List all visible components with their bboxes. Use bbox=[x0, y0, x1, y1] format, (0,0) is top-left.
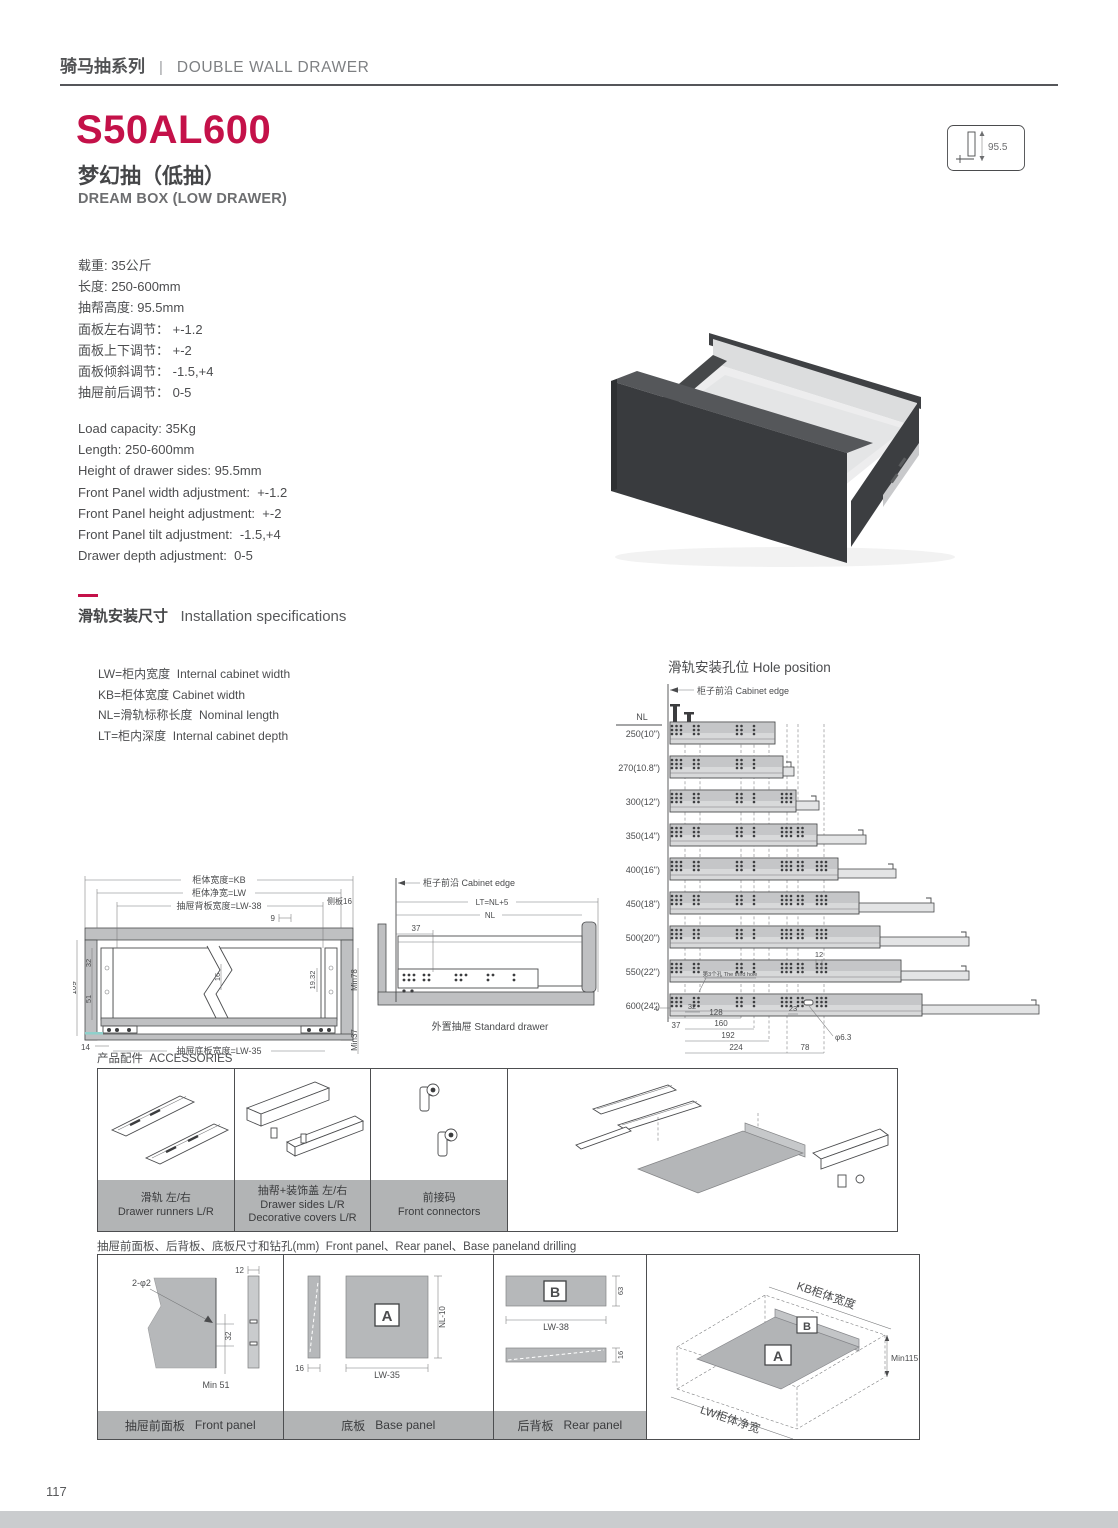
dim-label: 32 bbox=[84, 959, 93, 967]
accessory-cell-runners: 滑轨 左/右 Drawer runners L/R bbox=[98, 1069, 235, 1231]
hole-position-title: 滑轨安装孔位 Hole position bbox=[668, 656, 831, 676]
series-title-cn: 骑马抽系列 bbox=[60, 52, 145, 77]
front-panel-caption-en: Front panel bbox=[195, 1418, 256, 1432]
spec-line: Front Panel width adjustment: +-1.2 bbox=[78, 482, 287, 503]
rail-row-270: 270(10.8") bbox=[618, 756, 794, 778]
product-name-en: DREAM BOX (LOW DRAWER) bbox=[78, 191, 287, 207]
rear-panel-drawing: B 63 LW-38 16 bbox=[494, 1256, 645, 1411]
header-rule bbox=[60, 84, 1058, 86]
page-header: 骑马抽系列 | DOUBLE WALL DRAWER bbox=[60, 52, 369, 77]
dim-label: Min 51 bbox=[203, 1380, 230, 1390]
dim-label: 37 bbox=[672, 1021, 681, 1030]
spec-line: Load capacity: 35Kg bbox=[78, 418, 287, 439]
cabinet-edge-label: 柜子前沿 Cabinet edge bbox=[423, 877, 515, 888]
rail-row-550: 550(22") bbox=[626, 960, 969, 982]
rear-panel-caption-en: Rear panel bbox=[563, 1418, 622, 1432]
base-panel-caption-cn: 底板 bbox=[341, 1417, 365, 1434]
drawer-sides-icon bbox=[235, 1072, 370, 1177]
install-title-cn: 滑轨安装尺寸 bbox=[78, 608, 168, 625]
accessory-cell-sides: 抽帮+装饰盖 左/右 Drawer sides L/R Decorative c… bbox=[235, 1069, 372, 1231]
install-title-en: Installation specifications bbox=[180, 608, 346, 625]
badge-height-label: 95.5 bbox=[988, 142, 1008, 153]
accessory-caption-en: Drawer runners L/R bbox=[98, 1206, 234, 1220]
base-panel-caption-en: Base panel bbox=[375, 1418, 435, 1432]
catalog-page: 骑马抽系列 | DOUBLE WALL DRAWER S50AL600 梦幻抽（… bbox=[0, 0, 1118, 1528]
dim-label: 柜体宽度=KB bbox=[192, 874, 245, 885]
legend-line: LT=柜内深度 Internal cabinet depth bbox=[98, 726, 290, 747]
accessory-caption: 滑轨 左/右 Drawer runners L/R bbox=[98, 1180, 234, 1231]
spec-line: 载重: 35公斤 bbox=[78, 255, 213, 276]
exploded-assembly-drawing bbox=[508, 1071, 896, 1229]
spec-line: Height of drawer sides: 95.5mm bbox=[78, 460, 287, 481]
panels-title-cn: 抽屉前面板、后背板、底板尺寸和钻孔(mm) bbox=[97, 1241, 319, 1253]
install-section-title: 滑轨安装尺寸 Installation specifications bbox=[78, 605, 346, 626]
accessory-caption-en: Drawer sides L/R bbox=[235, 1199, 371, 1213]
dim-label: 19.32 bbox=[308, 971, 317, 990]
dim-label: 128 bbox=[709, 1008, 723, 1017]
dim-label: NL bbox=[485, 911, 496, 920]
front-panel-caption: 抽屉前面板 Front panel bbox=[98, 1411, 283, 1439]
iso-mark-a: A bbox=[773, 1348, 783, 1364]
install-legend: LW=柜内宽度 Internal cabinet width KB=柜体宽度 C… bbox=[98, 664, 290, 746]
section-accent-dash bbox=[78, 594, 98, 597]
dim-label: 16 bbox=[213, 973, 222, 981]
nl-row-label: 250(10") bbox=[626, 729, 660, 739]
front-bracket-icon bbox=[670, 704, 694, 722]
specs-english: Load capacity: 35Kg Length: 250-600mm He… bbox=[78, 418, 287, 566]
nl-row-label: 550(22") bbox=[626, 967, 660, 977]
nl-row-label: 300(12") bbox=[626, 797, 660, 807]
dim-label: Min115 bbox=[891, 1353, 918, 1363]
nl-row-label: 500(20") bbox=[626, 933, 660, 943]
rear-panel-mark: B bbox=[550, 1284, 560, 1300]
dim-label: 16 bbox=[295, 1364, 304, 1373]
accessory-caption-en2: Decorative covers L/R bbox=[235, 1212, 371, 1226]
rail-row-500: 500(20") bbox=[626, 926, 969, 948]
spec-line: Drawer depth adjustment: 0-5 bbox=[78, 545, 287, 566]
spec-line: Front Panel tilt adjustment: -1.5,+4 bbox=[78, 524, 287, 545]
spec-line: 面板倾斜调节： -1.5,+4 bbox=[78, 361, 213, 382]
spec-line: 抽帮高度: 95.5mm bbox=[78, 297, 213, 318]
rail-row-450: 450(18") bbox=[626, 892, 934, 914]
legend-line: KB=柜体宽度 Cabinet width bbox=[98, 685, 290, 706]
legend-line: NL=滑轨标称长度 Nominal length bbox=[98, 705, 290, 726]
spec-line: 长度: 250-600mm bbox=[78, 276, 213, 297]
base-panel-drawing: 16 A LW-35 NL-10 bbox=[284, 1256, 493, 1411]
panels-table: 2-φ2 32 Min 51 12 抽屉前面板 bbox=[97, 1254, 920, 1440]
cabinet-iso-drawing: A B KB柜体宽度 LW柜体净宽 Min115 bbox=[647, 1255, 918, 1439]
accessories-title-en: ACCESSORIES bbox=[149, 1053, 232, 1065]
rail-row-400: 400(16") bbox=[626, 858, 896, 880]
rail-row-300: 300(12") bbox=[626, 790, 819, 812]
iso-mark-b: B bbox=[803, 1321, 811, 1333]
base-panel-mark: A bbox=[381, 1308, 392, 1325]
dim-label: Min78 bbox=[350, 969, 359, 991]
dim-label: 23 bbox=[789, 1004, 797, 1013]
dim-label: LW-38 bbox=[544, 1322, 570, 1332]
cabinet-edge-label: 柜子前沿 Cabinet edge bbox=[697, 685, 789, 696]
third-hole-note: 第3个孔 The third hole bbox=[703, 970, 758, 978]
dim-label: 14 bbox=[81, 1043, 90, 1052]
rear-panel-caption: 后背板 Rear panel bbox=[494, 1411, 646, 1439]
dim-label: 32 bbox=[688, 1002, 696, 1011]
panels-title-en: Front panel、Rear panel、Base paneland dri… bbox=[326, 1241, 577, 1253]
dim-label: 192 bbox=[721, 1031, 735, 1040]
series-separator: | bbox=[159, 59, 163, 76]
side-view-structure bbox=[378, 922, 596, 1005]
accessories-table: 滑轨 左/右 Drawer runners L/R 抽帮+装饰盖 左/右 bbox=[97, 1068, 898, 1232]
accessory-caption: 前接码 Front connectors bbox=[371, 1180, 507, 1231]
dim-label: 12 bbox=[815, 950, 823, 959]
dim-label: 160 bbox=[714, 1019, 728, 1028]
dim-label: 抽屉背板宽度=LW-38 bbox=[177, 900, 262, 911]
spec-line: Length: 250-600mm bbox=[78, 439, 287, 460]
accessory-cell-connectors: 前接码 Front connectors bbox=[371, 1069, 508, 1231]
cross-section-drawing: 柜体宽度=KB 柜体净宽=LW 抽屉背板宽度=LW-38 侧板16 9 109 … bbox=[73, 872, 365, 1062]
dim-label: 37 bbox=[412, 924, 421, 933]
front-panel-caption-cn: 抽屉前面板 bbox=[125, 1417, 185, 1434]
dim-label: 12 bbox=[235, 1266, 244, 1275]
hole-diameter-label: φ6.3 bbox=[835, 1033, 852, 1042]
slotted-hole bbox=[804, 1000, 813, 1005]
rear-panel-cell: B 63 LW-38 16 后背板 Rear panel bbox=[494, 1255, 647, 1439]
iso-cell: A B KB柜体宽度 LW柜体净宽 Min115 bbox=[647, 1255, 919, 1439]
accessory-caption-cn: 前接码 bbox=[371, 1192, 507, 1206]
nl-row-label: 400(16") bbox=[626, 865, 660, 875]
dim-label: 侧板16 bbox=[327, 896, 352, 906]
dim-label: LT=NL+5 bbox=[476, 898, 509, 907]
accessories-title-cn: 产品配件 bbox=[97, 1053, 143, 1065]
rail-row-350: 350(14") bbox=[626, 824, 866, 846]
side-view-caption: 外置抽屉 Standard drawer bbox=[432, 1020, 549, 1033]
spec-line: Front Panel height adjustment: +-2 bbox=[78, 503, 287, 524]
accessory-caption: 抽帮+装饰盖 左/右 Drawer sides L/R Decorative c… bbox=[235, 1180, 371, 1231]
dim-label: 109 bbox=[73, 981, 78, 995]
nl-row-label: 270(10.8") bbox=[618, 763, 660, 773]
nl-row-label: 350(14") bbox=[626, 831, 660, 841]
hole-position-diagram: 柜子前沿 Cabinet edge NL 250(10")270(10.8")3… bbox=[602, 676, 1062, 1061]
dim-label: 柜体净宽=LW bbox=[192, 887, 247, 898]
spec-line: 面板上下调节： +-2 bbox=[78, 340, 213, 361]
dim-label: 78 bbox=[801, 1043, 810, 1052]
dim-label: 9 bbox=[271, 914, 276, 923]
accessory-caption-cn: 抽帮+装饰盖 左/右 bbox=[235, 1185, 371, 1199]
dim-label: 63 bbox=[616, 1286, 625, 1294]
front-connectors-icon bbox=[372, 1072, 507, 1177]
drawer-runners-icon bbox=[98, 1072, 233, 1177]
height-badge: 95.5 bbox=[946, 124, 1026, 172]
dim-label: LW-35 bbox=[374, 1370, 400, 1380]
nl-row-label: 450(18") bbox=[626, 899, 660, 909]
spec-line: 面板左右调节： +-1.2 bbox=[78, 319, 213, 340]
nl-column-header: NL bbox=[636, 712, 648, 722]
rear-panel-caption-cn: 后背板 bbox=[517, 1417, 553, 1434]
specs-chinese: 载重: 35公斤 长度: 250-600mm 抽帮高度: 95.5mm 面板左右… bbox=[78, 255, 213, 403]
accessories-title: 产品配件 ACCESSORIES bbox=[97, 1050, 232, 1066]
dim-label: 16 bbox=[616, 1350, 625, 1358]
dim-label: 32 bbox=[224, 1331, 233, 1340]
panels-title: 抽屉前面板、后背板、底板尺寸和钻孔(mm) Front panel、Rear p… bbox=[97, 1238, 576, 1254]
base-panel-cell: 16 A LW-35 NL-10 底板 Base panel bbox=[284, 1255, 494, 1439]
legend-line: LW=柜内宽度 Internal cabinet width bbox=[98, 664, 290, 685]
dim-label: 4 bbox=[654, 1004, 658, 1013]
drawer-side-profile-icon bbox=[968, 132, 975, 156]
base-panel-caption: 底板 Base panel bbox=[284, 1411, 493, 1439]
product-photo bbox=[585, 295, 1005, 580]
product-name-cn: 梦幻抽（低抽） bbox=[78, 160, 225, 190]
rail-rows: 250(10")270(10.8")300(12")350(14")400(16… bbox=[618, 722, 1039, 1016]
series-title-en: DOUBLE WALL DRAWER bbox=[177, 59, 370, 77]
dim-label: NL-10 bbox=[438, 1305, 447, 1327]
footer-band bbox=[0, 1511, 1118, 1528]
accessory-cell-exploded bbox=[508, 1069, 897, 1231]
dim-label: 2-φ2 bbox=[132, 1278, 151, 1288]
page-number: 117 bbox=[46, 1484, 67, 1499]
dim-label: 51 bbox=[84, 995, 93, 1003]
product-model: S50AL600 bbox=[76, 108, 271, 153]
accessory-caption-cn: 滑轨 左/右 bbox=[98, 1192, 234, 1206]
dim-label: 224 bbox=[729, 1043, 743, 1052]
spec-line: 抽屉前后调节： 0-5 bbox=[78, 382, 213, 403]
dim-label: Min37 bbox=[350, 1029, 359, 1051]
front-panel-drawing: 2-φ2 32 Min 51 12 bbox=[98, 1256, 282, 1411]
accessory-caption-en: Front connectors bbox=[371, 1206, 507, 1220]
front-panel-cell: 2-φ2 32 Min 51 12 抽屉前面板 bbox=[98, 1255, 284, 1439]
side-view-drawing: 柜子前沿 Cabinet edge LT=NL+5 NL 37 外置抽屉 Sta… bbox=[376, 872, 604, 1048]
iso-lw-label: LW柜体净宽 bbox=[699, 1402, 763, 1436]
